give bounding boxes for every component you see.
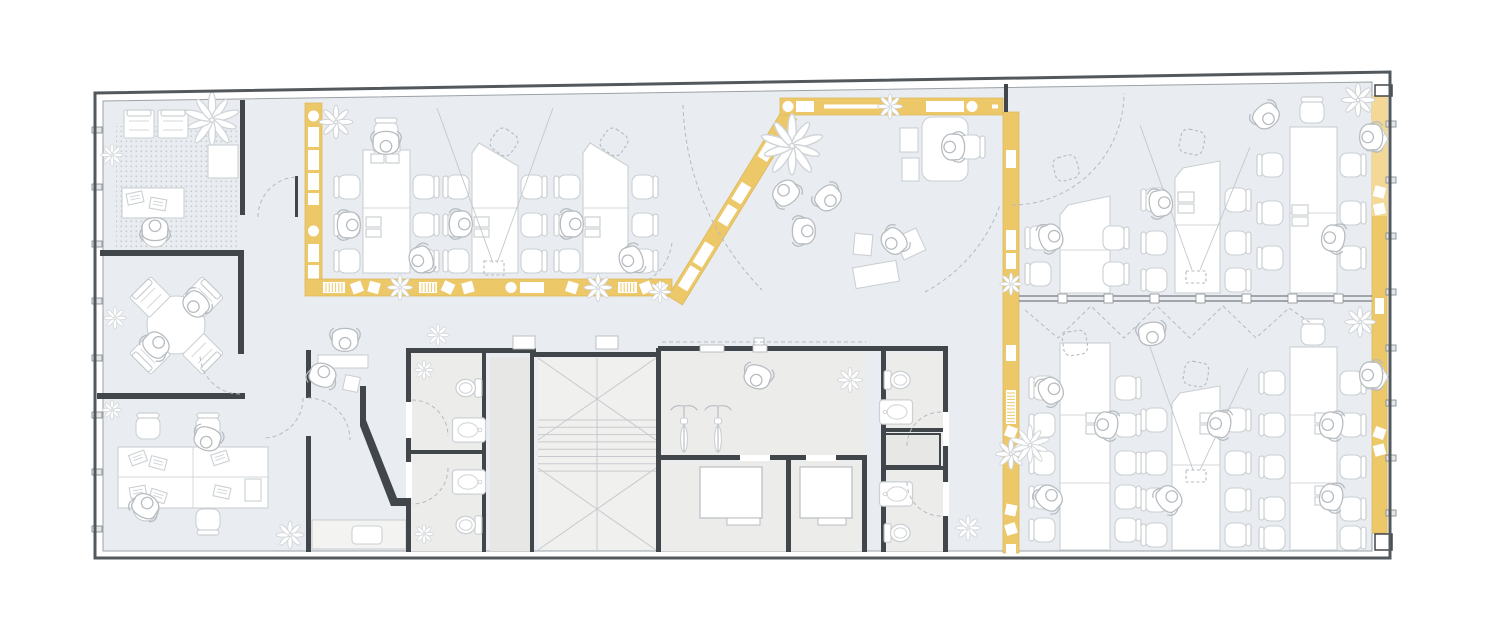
task-chair (1259, 497, 1285, 521)
armchair (158, 110, 188, 138)
task-chair (1259, 371, 1285, 395)
elevator-car (800, 467, 852, 518)
wall-segment (100, 250, 240, 256)
task-chair (1340, 526, 1366, 550)
cabinet-bar-item (992, 105, 998, 109)
cabinet-box (1375, 298, 1384, 314)
task-chair (1225, 231, 1251, 255)
wall-segment (656, 348, 661, 552)
person-figure (371, 131, 402, 154)
floor-plan-drawing (0, 0, 1500, 630)
task-chair (1115, 518, 1141, 542)
desk (363, 150, 410, 273)
task-chair (1301, 319, 1325, 345)
cabinet-bar-item (824, 105, 880, 109)
plant-icon (414, 524, 434, 544)
person-figure (330, 328, 361, 351)
sink-fixture (453, 418, 486, 442)
task-chair (521, 249, 547, 273)
task-chair (521, 213, 547, 237)
toilet-fixture (884, 371, 910, 389)
cabinet-box (926, 101, 964, 112)
desk-monitor (366, 229, 381, 237)
cabinet-box (308, 193, 319, 205)
plant-icon (276, 521, 304, 549)
task-chair (196, 509, 220, 535)
person-figure (792, 216, 815, 247)
person-figure (1360, 122, 1383, 153)
furnishing-rect (343, 375, 361, 393)
elevator-sill (818, 518, 846, 525)
furnishing-rect (902, 158, 919, 181)
task-chair (1300, 97, 1324, 123)
plant-icon (427, 324, 449, 346)
wall-segment (881, 428, 945, 432)
plant-icon (104, 307, 126, 329)
cabinet-box (1006, 230, 1016, 250)
wall-segment (406, 450, 484, 454)
task-chair (413, 175, 439, 199)
wall-segment (530, 353, 534, 552)
millwork-cabinet (1372, 96, 1387, 533)
furnishing-rect (853, 233, 873, 255)
wall-segment (238, 250, 244, 354)
cabinet-box (308, 127, 319, 147)
cabinet-box (1006, 345, 1016, 361)
door-opening (406, 402, 412, 438)
door-opening (740, 455, 770, 461)
person-figure (1360, 360, 1383, 391)
person-figure (942, 132, 965, 163)
cabinet-box (1006, 150, 1016, 168)
task-chair (1340, 497, 1366, 521)
plant-icon (837, 367, 862, 392)
wall-segment (881, 466, 945, 470)
wall-segment (240, 100, 245, 215)
task-chair (1340, 153, 1366, 177)
toilet-fixture (456, 516, 482, 534)
task-chair (1115, 376, 1141, 400)
task-chair (413, 213, 439, 237)
task-chair (1141, 231, 1167, 255)
cabinet-box (308, 150, 319, 170)
wall-segment (295, 176, 298, 217)
furnishing-rect (884, 434, 940, 466)
task-chair (1259, 455, 1285, 479)
task-chair (554, 249, 580, 273)
person-figure (337, 210, 360, 241)
door-opening (406, 462, 412, 498)
desk-monitor (366, 217, 381, 227)
task-chair (334, 249, 360, 273)
room-fill (490, 357, 530, 551)
task-chair (1257, 153, 1283, 177)
desk-monitor (474, 217, 489, 227)
cabinet-tilt-item (1373, 202, 1386, 215)
wall-segment (97, 393, 245, 399)
task-chair (1340, 413, 1366, 437)
partition-mullion (1334, 294, 1343, 303)
task-chair (632, 213, 658, 237)
cabinet-box (1006, 253, 1016, 269)
wall-segment (943, 348, 948, 552)
person-figure (560, 209, 583, 240)
partition-mullion (1242, 294, 1251, 303)
task-chair (632, 175, 658, 199)
cabinet-tilt-item (1004, 503, 1017, 516)
task-chair (1141, 451, 1167, 475)
desk-monitor (1292, 217, 1308, 226)
wall-segment (1004, 84, 1008, 112)
task-chair (1029, 451, 1055, 475)
task-chair (1259, 413, 1285, 437)
door-opening (943, 412, 949, 446)
task-chair (443, 249, 469, 273)
task-chair (554, 175, 580, 199)
desk-monitor (1292, 205, 1308, 215)
sink-fixture (453, 470, 486, 494)
floorplan-image (0, 0, 1500, 630)
person-figure (449, 209, 472, 240)
furnishing-rect (352, 526, 382, 544)
wall-segment (862, 460, 867, 552)
task-chair (1141, 408, 1167, 432)
plant-icon (1345, 307, 1376, 338)
elevator-car (700, 467, 762, 518)
desk-monitor (585, 229, 600, 237)
cabinet-circle-item (308, 226, 319, 237)
furnishing-rect (245, 479, 261, 501)
partition-mullion (1196, 294, 1205, 303)
task-chair (1340, 455, 1366, 479)
desk-monitor (1178, 192, 1194, 202)
plant-icon (1341, 83, 1375, 117)
plant-icon (102, 400, 122, 420)
column-niche (753, 345, 767, 352)
task-chair (1115, 413, 1141, 437)
task-chair (1141, 523, 1167, 547)
desk (1290, 347, 1337, 550)
cabinet-circle-item (967, 101, 978, 112)
partition-mullion (1104, 294, 1113, 303)
task-chair (1257, 246, 1283, 270)
cabinet-circle-item (506, 282, 517, 293)
partition-mullion (1288, 294, 1297, 303)
toilet-fixture (884, 524, 910, 542)
task-chair (1029, 518, 1055, 542)
task-chair (1115, 485, 1141, 509)
plant-icon (414, 360, 434, 380)
cabinet-plant-icon (387, 275, 412, 300)
task-chair (1340, 201, 1366, 225)
cabinet-body (1003, 112, 1019, 553)
cabinet-plant-icon (877, 94, 902, 119)
wall-segment (864, 346, 948, 351)
plant-icon (101, 144, 123, 166)
door-opening (943, 482, 949, 516)
task-chair (1257, 201, 1283, 225)
cabinet-circle-item (783, 101, 794, 112)
desk-papers (149, 197, 167, 211)
door-opening (806, 455, 836, 461)
partition-mullion (1058, 294, 1067, 303)
plant-icon (319, 105, 353, 139)
cabinet-box (308, 173, 319, 190)
millwork-cabinet (780, 94, 1003, 119)
task-chair (1225, 523, 1251, 547)
desk-monitor (371, 154, 384, 163)
task-chair (1025, 262, 1051, 286)
task-chair (136, 413, 160, 439)
elevator-sill (727, 518, 760, 525)
cabinet-box (520, 282, 544, 293)
wall-segment (786, 460, 791, 552)
wall-segment (306, 436, 311, 552)
plant-icon (955, 515, 980, 540)
desk-monitor (585, 217, 600, 227)
wall-segment (534, 352, 660, 357)
desk (1172, 386, 1220, 550)
plant-icon (649, 281, 671, 303)
task-chair (1225, 268, 1251, 292)
task-chair (1259, 526, 1285, 550)
millwork-cabinet (305, 103, 322, 285)
furnishing-rect (208, 145, 238, 178)
task-chair (334, 175, 360, 199)
cabinet-plant-icon (1000, 273, 1022, 295)
column-niche (700, 345, 724, 352)
toilet-fixture (456, 379, 482, 397)
furnishing-rect (900, 128, 918, 152)
task-chair (1225, 488, 1251, 512)
task-chair (1141, 268, 1167, 292)
desk-monitor (386, 154, 399, 163)
desk (1175, 161, 1220, 293)
sink-fixture (880, 400, 913, 424)
desk-monitor (1178, 204, 1194, 213)
cabinet-box (308, 265, 319, 280)
cabinet-light-section (1372, 96, 1387, 216)
armchair (124, 110, 154, 138)
task-chair (1340, 246, 1366, 270)
task-chair (1115, 451, 1141, 475)
partition-mullion (1150, 294, 1159, 303)
task-chair (1225, 451, 1251, 475)
cabinet-box (308, 244, 319, 262)
desk (1060, 343, 1110, 550)
cabinet-plant-icon (584, 274, 612, 302)
task-chair (1103, 226, 1129, 250)
task-chair (1103, 262, 1129, 286)
column-niche (596, 336, 618, 349)
column-niche (513, 336, 535, 349)
cabinet-box (796, 101, 814, 112)
cabinet-circle-item (308, 111, 319, 122)
person-figure (140, 218, 171, 241)
